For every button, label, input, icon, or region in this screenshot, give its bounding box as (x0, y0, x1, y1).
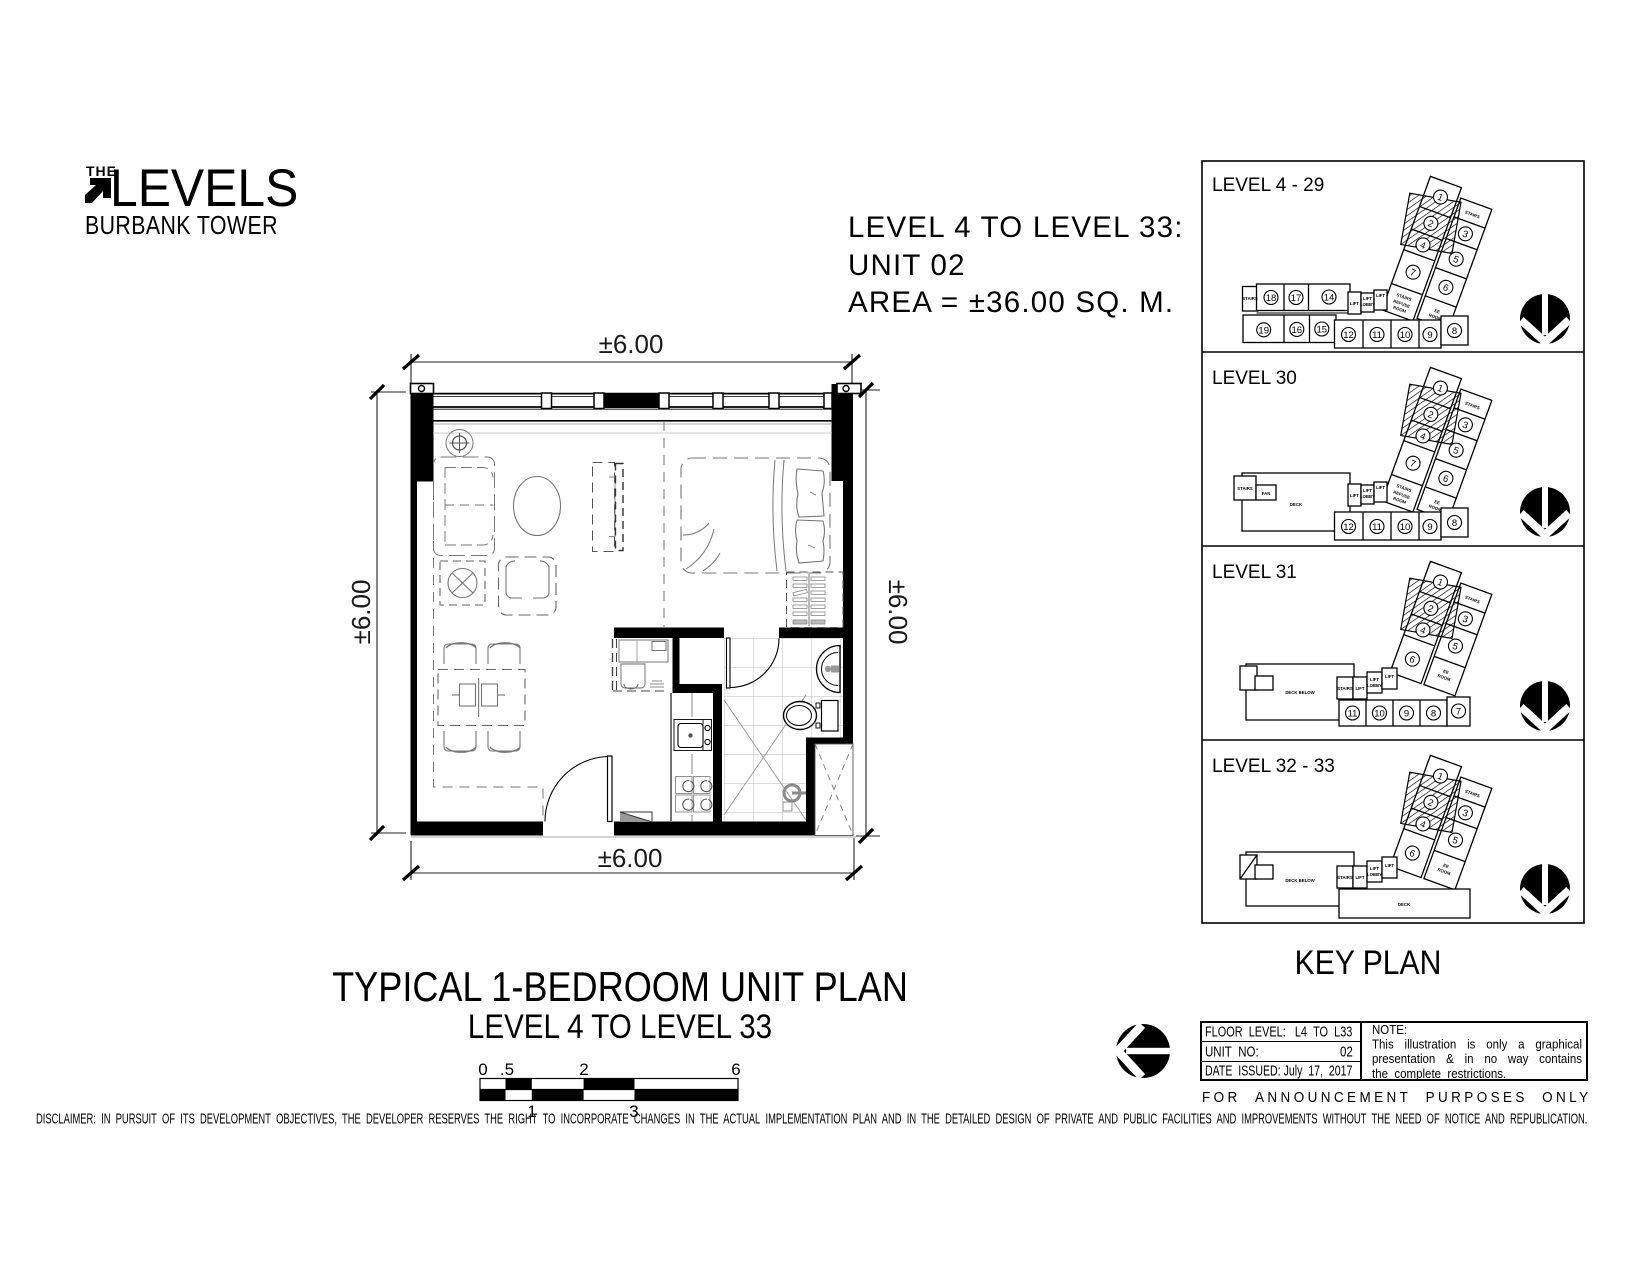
svg-text:11: 11 (1372, 330, 1382, 341)
svg-text:LIFT: LIFT (1363, 488, 1372, 493)
svg-text:STAIRS: STAIRS (1337, 875, 1353, 880)
svg-text:11: 11 (1372, 522, 1382, 533)
svg-text:9: 9 (1404, 709, 1409, 720)
svg-text:±6.00: ±6.00 (883, 580, 913, 645)
svg-text:18: 18 (1266, 293, 1277, 304)
svg-text:LIFT: LIFT (1350, 301, 1359, 306)
svg-text:9: 9 (1427, 522, 1432, 533)
svg-text:±6.00: ±6.00 (599, 329, 664, 359)
svg-text:STAIRS: STAIRS (1242, 296, 1258, 301)
svg-text:±6.00: ±6.00 (346, 580, 376, 645)
svg-text:11: 11 (1348, 709, 1358, 720)
svg-text:10: 10 (1400, 330, 1411, 341)
svg-text:12: 12 (1343, 522, 1354, 533)
svg-text:19: 19 (1258, 325, 1269, 336)
svg-text:STAIRS: STAIRS (1237, 486, 1253, 491)
svg-text:9: 9 (1427, 330, 1432, 341)
svg-text:LEVEL 4 - 29: LEVEL 4 - 29 (1212, 175, 1324, 196)
svg-text:8: 8 (1431, 709, 1436, 720)
svg-text:8: 8 (1452, 326, 1457, 337)
svg-text:FAN: FAN (1262, 491, 1271, 496)
svg-text:12: 12 (1343, 330, 1354, 341)
svg-text:14: 14 (1324, 293, 1335, 304)
svg-text:LOBBY: LOBBY (1360, 302, 1375, 307)
svg-text:LEVEL 31: LEVEL 31 (1212, 562, 1297, 583)
svg-text:16: 16 (1292, 325, 1303, 336)
svg-text:DECK BELOW: DECK BELOW (1285, 878, 1315, 883)
svg-text:LIFT: LIFT (1370, 677, 1379, 682)
svg-text:DECK: DECK (1398, 902, 1411, 907)
svg-text:LOBBY: LOBBY (1367, 683, 1382, 688)
svg-text:.5: .5 (500, 1060, 514, 1079)
svg-text:±6.00: ±6.00 (598, 843, 663, 873)
svg-text:8: 8 (1452, 518, 1457, 529)
svg-text:6: 6 (731, 1060, 740, 1079)
svg-text:LIFT: LIFT (1376, 485, 1385, 490)
svg-text:LIFT: LIFT (1355, 875, 1364, 880)
svg-text:10: 10 (1374, 709, 1385, 720)
svg-text:DECK BELOW: DECK BELOW (1285, 690, 1315, 695)
svg-text:LIFT: LIFT (1350, 493, 1359, 498)
svg-text:LEVEL 32 - 33: LEVEL 32 - 33 (1212, 756, 1335, 777)
svg-text:0: 0 (478, 1060, 487, 1079)
svg-text:15: 15 (1317, 325, 1328, 336)
svg-text:LIFT: LIFT (1370, 866, 1379, 871)
svg-text:LIFT: LIFT (1376, 293, 1385, 298)
svg-text:LIFT: LIFT (1363, 296, 1372, 301)
svg-text:LIFT: LIFT (1385, 863, 1394, 868)
svg-text:LIFT: LIFT (1355, 686, 1364, 691)
svg-text:LEVEL 30: LEVEL 30 (1212, 368, 1297, 389)
svg-text:17: 17 (1291, 293, 1302, 304)
svg-text:STAIRS: STAIRS (1337, 686, 1353, 691)
svg-text:LIFT: LIFT (1385, 674, 1394, 679)
svg-text:7: 7 (1456, 707, 1461, 718)
svg-text:2: 2 (579, 1060, 588, 1079)
svg-text:LOBBY: LOBBY (1367, 872, 1382, 877)
svg-text:10: 10 (1400, 522, 1411, 533)
svg-text:DECK: DECK (1290, 502, 1303, 507)
svg-text:LOBBY: LOBBY (1360, 494, 1375, 499)
